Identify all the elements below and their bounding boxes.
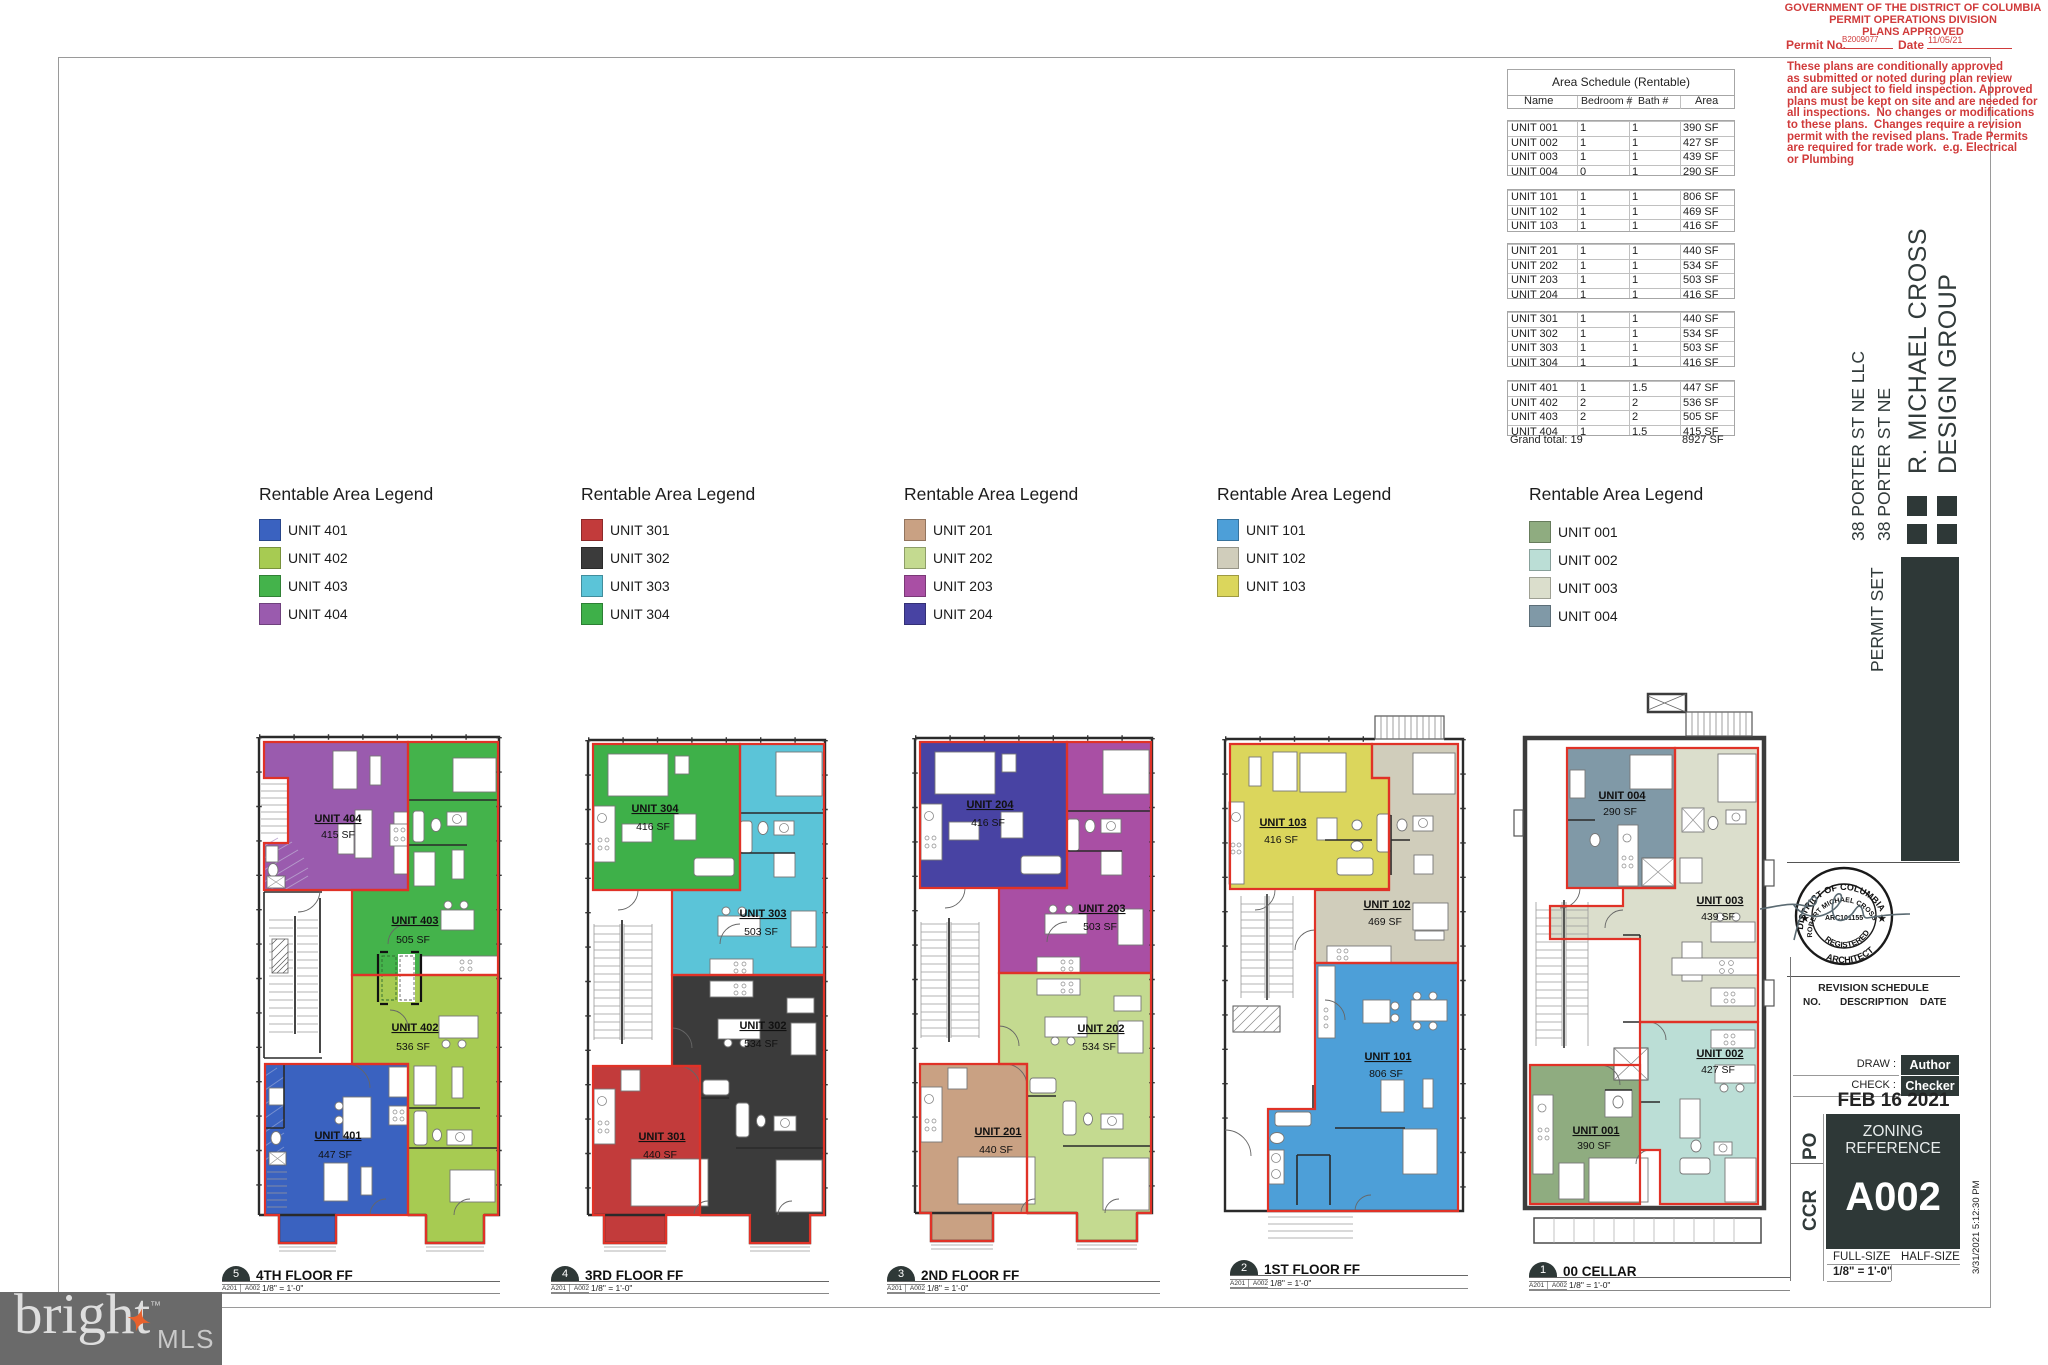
svg-text:290 SF: 290 SF xyxy=(1603,806,1637,818)
svg-text:UNIT 304: UNIT 304 xyxy=(631,803,679,815)
svg-text:UNIT 201: UNIT 201 xyxy=(974,1126,1021,1138)
svg-text:469 SF: 469 SF xyxy=(1368,916,1402,928)
svg-text:UNIT 204: UNIT 204 xyxy=(966,799,1014,811)
svg-text:416 SF: 416 SF xyxy=(971,817,1005,829)
svg-text:536 SF: 536 SF xyxy=(396,1041,430,1053)
svg-text:390 SF: 390 SF xyxy=(1577,1140,1611,1152)
svg-text:UNIT 003: UNIT 003 xyxy=(1696,895,1743,907)
svg-text:UNIT 402: UNIT 402 xyxy=(391,1022,438,1034)
svg-text:UNIT 302: UNIT 302 xyxy=(739,1020,786,1032)
svg-text:447 SF: 447 SF xyxy=(318,1149,352,1161)
svg-text:UNIT 004: UNIT 004 xyxy=(1598,790,1646,802)
svg-text:UNIT 401: UNIT 401 xyxy=(314,1130,361,1142)
svg-text:REGISTERED: REGISTERED xyxy=(1823,928,1871,949)
svg-text:427 SF: 427 SF xyxy=(1701,1064,1735,1076)
svg-text:UNIT 101: UNIT 101 xyxy=(1364,1051,1411,1063)
svg-text:534 SF: 534 SF xyxy=(744,1038,778,1050)
svg-text:UNIT 002: UNIT 002 xyxy=(1696,1048,1743,1060)
svg-text:UNIT 103: UNIT 103 xyxy=(1259,817,1306,829)
svg-text:UNIT 102: UNIT 102 xyxy=(1363,899,1410,911)
svg-text:505 SF: 505 SF xyxy=(396,934,430,946)
svg-text:UNIT 303: UNIT 303 xyxy=(739,908,786,920)
svg-text:UNIT 301: UNIT 301 xyxy=(638,1131,685,1143)
svg-text:440 SF: 440 SF xyxy=(643,1149,677,1161)
svg-text:UNIT 203: UNIT 203 xyxy=(1078,903,1125,915)
svg-text:503 SF: 503 SF xyxy=(744,926,778,938)
svg-text:534 SF: 534 SF xyxy=(1082,1041,1116,1053)
svg-text:UNIT 404: UNIT 404 xyxy=(314,813,362,825)
svg-text:UNIT 403: UNIT 403 xyxy=(391,915,438,927)
svg-text:415 SF: 415 SF xyxy=(321,829,355,841)
svg-text:416 SF: 416 SF xyxy=(1264,834,1298,846)
svg-text:UNIT 001: UNIT 001 xyxy=(1572,1125,1619,1137)
svg-text:439 SF: 439 SF xyxy=(1701,911,1735,923)
svg-text:UNIT 202: UNIT 202 xyxy=(1077,1023,1124,1035)
svg-text:ARC101155: ARC101155 xyxy=(1825,915,1863,922)
svg-text:503 SF: 503 SF xyxy=(1083,921,1117,933)
svg-text:416 SF: 416 SF xyxy=(636,821,670,833)
svg-text:806 SF: 806 SF xyxy=(1369,1068,1403,1080)
svg-text:440 SF: 440 SF xyxy=(979,1144,1013,1156)
